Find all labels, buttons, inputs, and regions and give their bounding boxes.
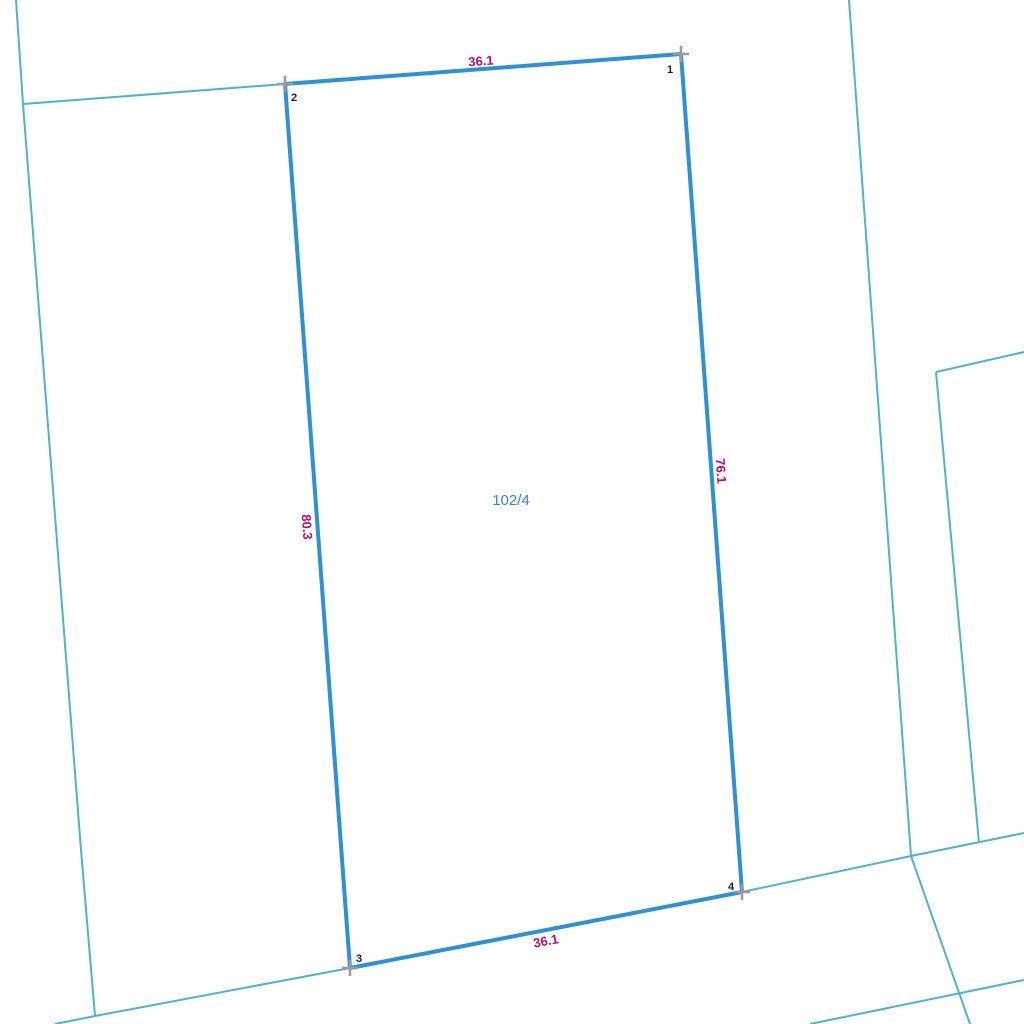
edge-measurement-label-0: 36.1: [468, 53, 494, 70]
vertex-number-label-4: 4: [728, 881, 735, 893]
cadastral-map-canvas[interactable]: 36.176.180.336.11234102/4: [0, 0, 1024, 1024]
neighbor-boundary-bottom-right-boundary: [742, 833, 1024, 892]
edge-measurement-label-3: 36.1: [532, 931, 560, 951]
vertex-markers-layer: [277, 46, 750, 976]
vertex-number-label-2: 2: [291, 92, 297, 104]
parcel-number-label: 102/4: [492, 492, 530, 509]
neighbor-boundary-bottom-left-boundary: [55, 968, 350, 1024]
vertex-number-label-1: 1: [667, 64, 673, 76]
neighbor-parcels-layer: [16, 0, 1024, 1024]
neighbor-boundary-left-boundary: [16, 0, 95, 1016]
vertex-number-label-3: 3: [356, 953, 362, 965]
neighbor-boundary-bottom-corner-line: [810, 980, 1024, 1024]
parcel-edge-3: [350, 892, 742, 968]
map-viewport[interactable]: 36.176.180.336.11234102/4: [0, 0, 1024, 1024]
labels-layer: 36.176.180.336.11234102/4: [291, 53, 735, 965]
parcel-edge-1: [681, 54, 742, 892]
neighbor-boundary-east-parcel-side: [936, 372, 979, 843]
parcel-edge-2: [285, 84, 350, 968]
neighbor-boundary-east-parcel-top: [936, 352, 1024, 372]
vertex-marker-1: [673, 46, 689, 62]
vertex-marker-2: [277, 76, 293, 92]
neighbor-boundary-top-neighbor-segment: [23, 84, 285, 104]
edge-measurement-label-1: 76.1: [713, 458, 730, 484]
vertex-marker-4: [734, 884, 750, 900]
edge-measurement-label-2: 80.3: [299, 514, 316, 540]
selected-parcel-layer: [285, 54, 742, 968]
neighbor-boundary-right-boundary: [849, 0, 970, 1024]
